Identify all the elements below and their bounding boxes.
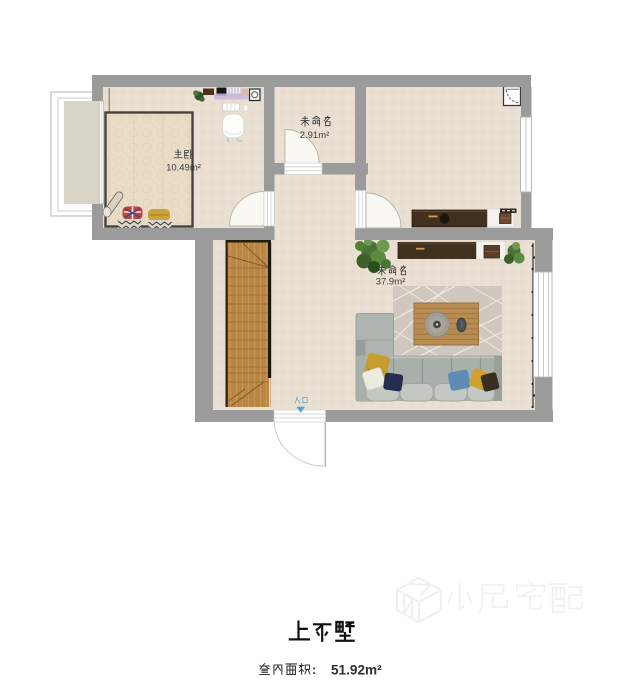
svg-text:2.91m²: 2.91m²: [300, 130, 330, 141]
svg-text::: :: [312, 662, 316, 677]
svg-text:37.9m²: 37.9m²: [376, 276, 406, 287]
svg-text:51.92m²: 51.92m²: [331, 663, 382, 678]
svg-text:10.49m²: 10.49m²: [166, 162, 201, 173]
